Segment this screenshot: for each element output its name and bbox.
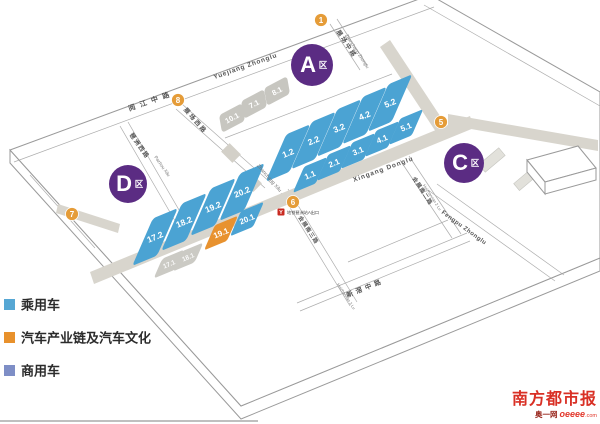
marker-7: 7 <box>66 208 79 221</box>
zone-d-badge: D 区 <box>109 165 147 203</box>
legend-label-commercial: 商用车 <box>21 364 60 379</box>
zone-c-suffix: 区 <box>471 158 480 168</box>
marker-number: 1 <box>319 16 324 25</box>
zone-a-letter: A <box>300 52 316 77</box>
site-en: oeeee <box>560 409 586 419</box>
legend-item-industry: 汽车产业链及汽车文化 <box>4 331 151 346</box>
exhibition-complex-map: 17.1 18.1 17.2 18.2 19.2 20.2 19.1 <box>0 0 600 424</box>
newspaper-logo: 南方都市报 奥一网oeeee.com <box>512 389 597 419</box>
legend-label-passenger: 乘用车 <box>20 298 60 313</box>
zone-d-letter: D <box>116 171 132 196</box>
marker-1: 1 <box>315 14 328 27</box>
legend-item-commercial: 商用车 <box>4 364 60 379</box>
metro-icon-letter: Y <box>279 210 283 216</box>
legend-swatch-passenger <box>4 299 15 310</box>
metro-station-label: 地铁琶洲站A出口 <box>287 209 319 216</box>
marker-6: 6 <box>287 196 300 209</box>
masthead-text: 南方都市报 <box>512 389 597 408</box>
zone-a-badge: A 区 <box>291 44 333 86</box>
marker-5: 5 <box>435 116 448 129</box>
marker-number: 7 <box>70 210 75 219</box>
zone-c-letter: C <box>452 150 468 175</box>
marker-number: 6 <box>291 198 296 207</box>
legend-label-industry: 汽车产业链及汽车文化 <box>21 331 151 346</box>
site-tld: .com <box>585 413 597 419</box>
zone-a-suffix: 区 <box>319 60 328 70</box>
zone-c-badge: C 区 <box>444 143 484 183</box>
metro-station: Y 地铁琶洲站A出口 <box>278 209 320 217</box>
legend-swatch-industry <box>4 332 15 343</box>
legend-item-passenger: 乘用车 <box>4 298 60 313</box>
exhibition-map-page: 17.1 18.1 17.2 18.2 19.2 20.2 19.1 <box>0 0 600 424</box>
marker-number: 5 <box>439 118 444 127</box>
zone-d-suffix: 区 <box>135 179 144 189</box>
site-cn: 奥一网 <box>534 409 558 419</box>
legend-swatch-commercial <box>4 365 15 376</box>
marker-number: 8 <box>176 96 181 105</box>
logo-site-line: 奥一网oeeee.com <box>534 409 597 419</box>
